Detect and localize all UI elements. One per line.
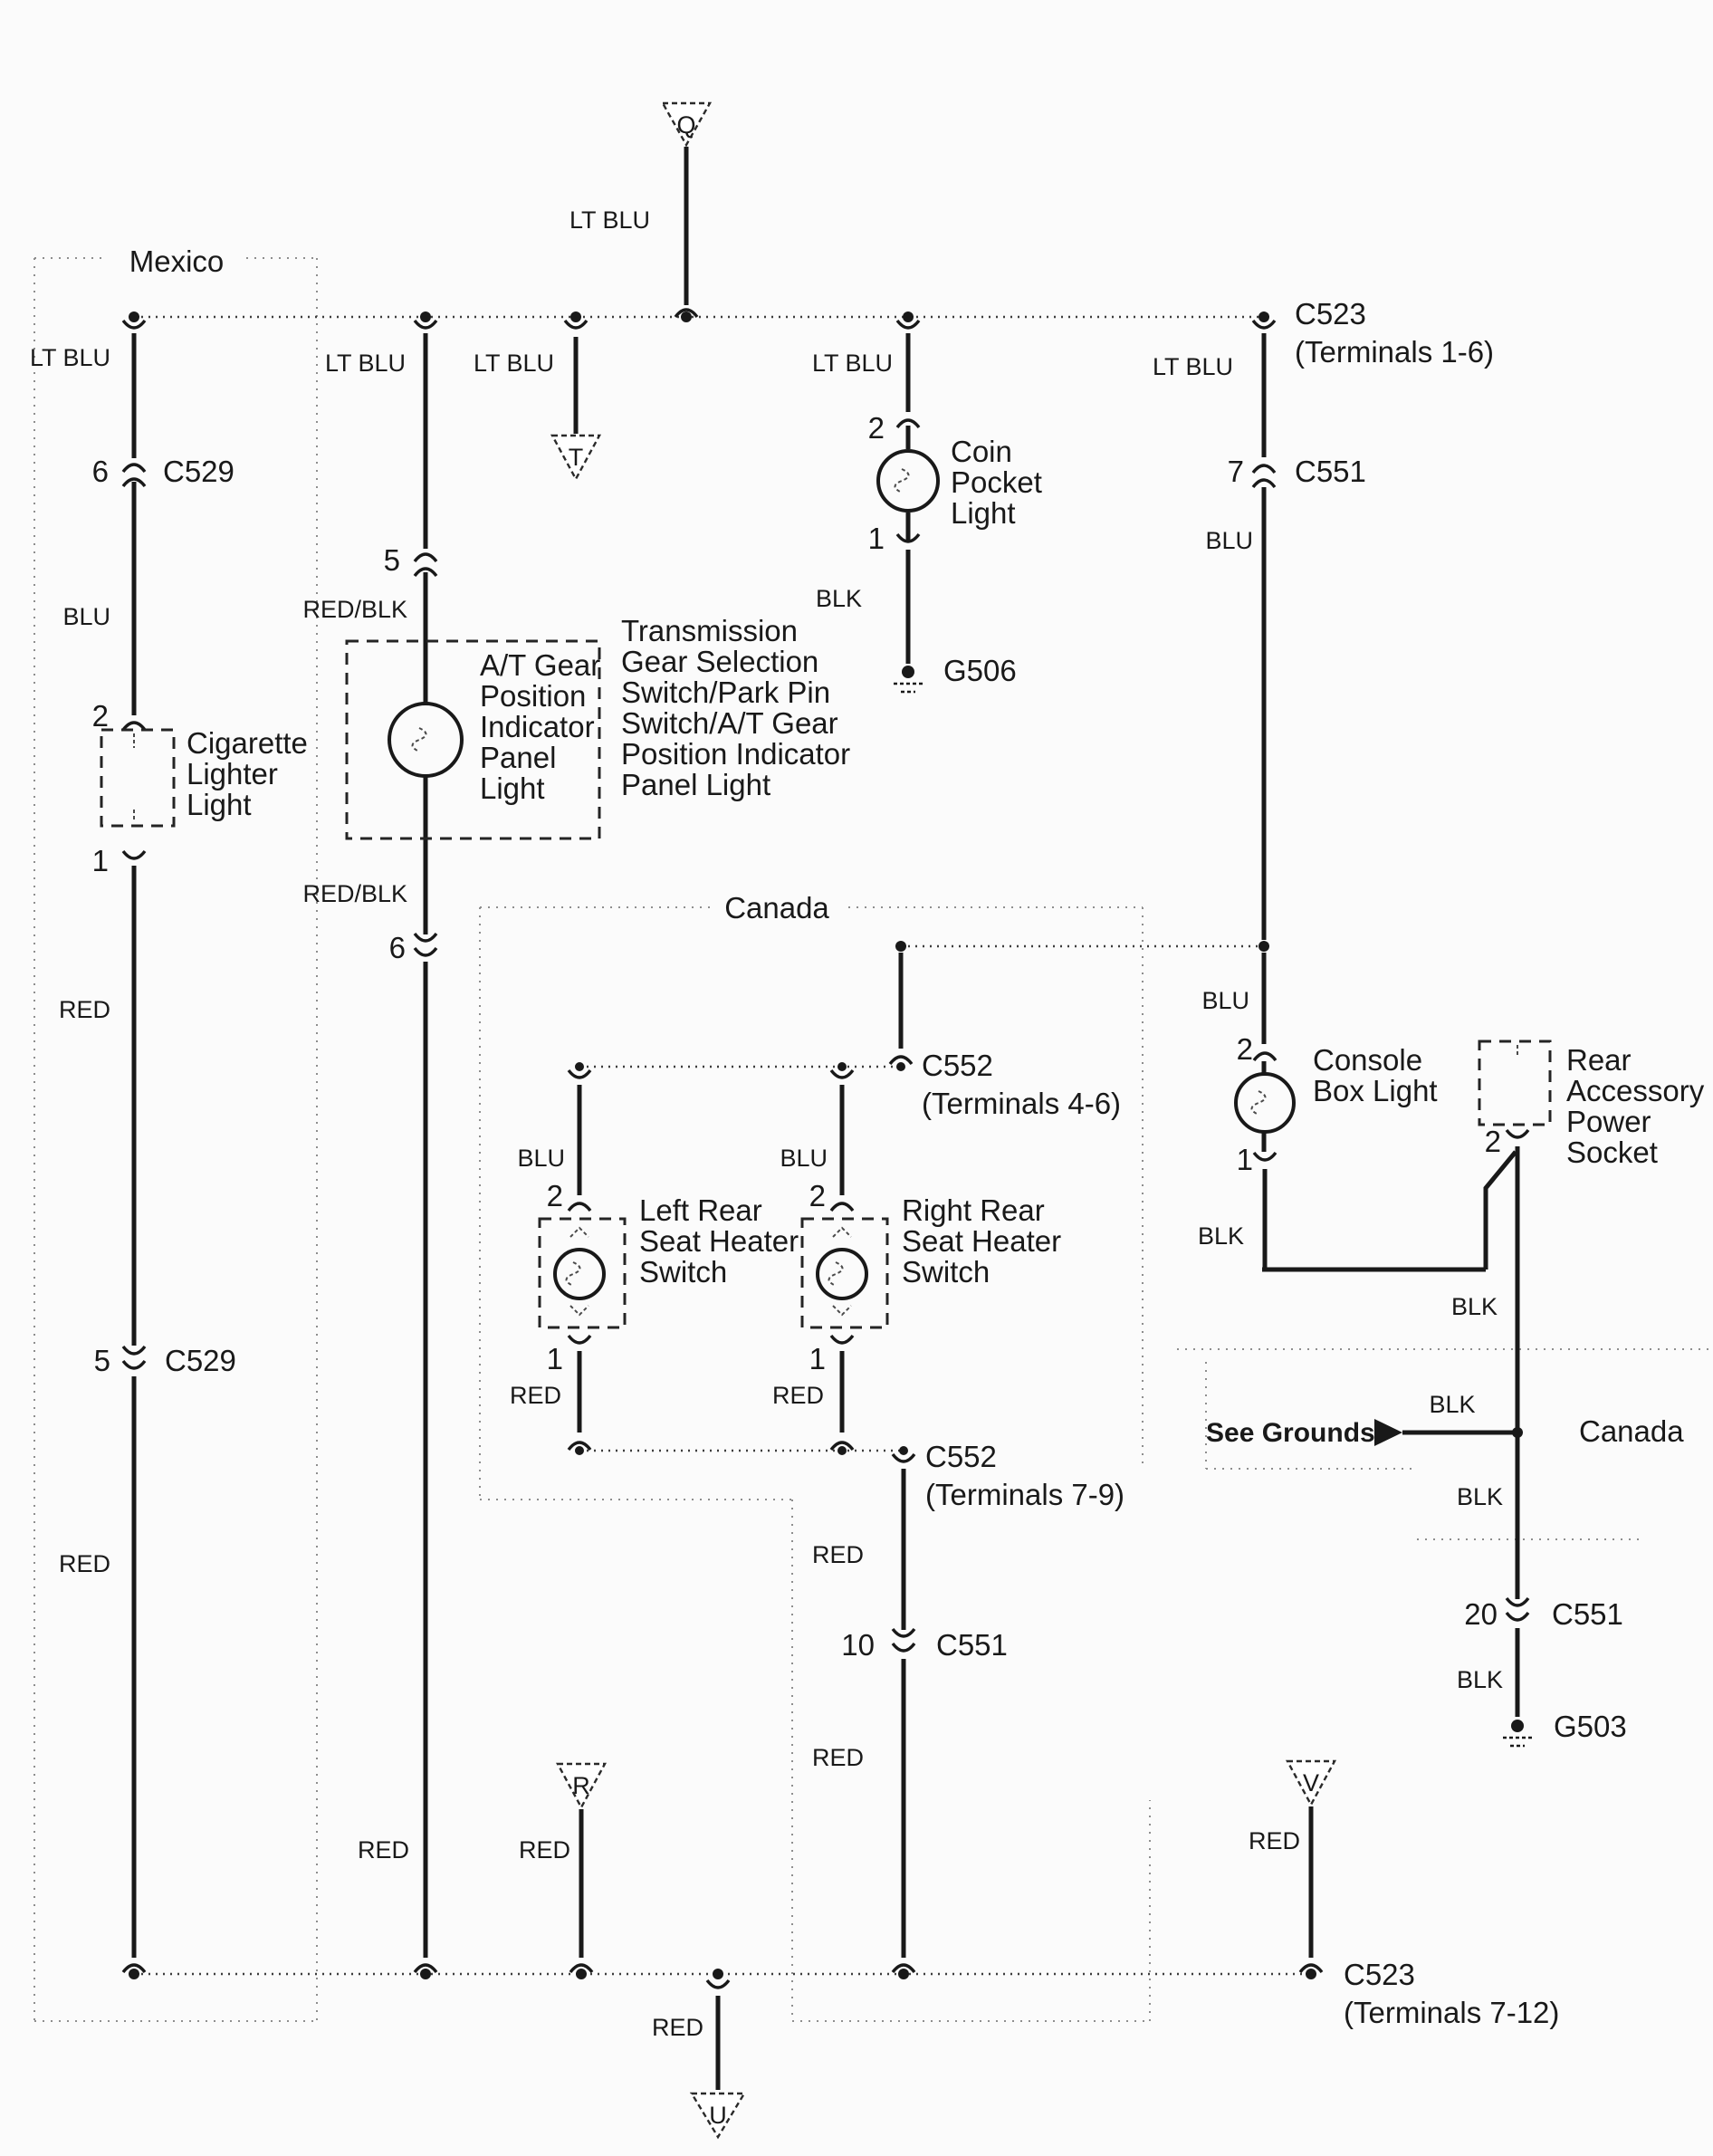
- wire-label: BLK: [816, 585, 862, 612]
- wire-label: BLK: [1429, 1391, 1475, 1418]
- ground-id: G503: [1554, 1710, 1627, 1743]
- pin-number: 1: [809, 1342, 826, 1375]
- bus-line: [134, 317, 1311, 1974]
- wire-label: RED/BLK: [302, 596, 407, 623]
- junction-dot: [837, 1062, 847, 1071]
- transmission-note-line: Gear Selection: [621, 645, 818, 678]
- right-heater-label-line: Seat Heater: [902, 1224, 1061, 1258]
- connector-id: C552: [925, 1440, 997, 1473]
- pin-number: 20: [1464, 1597, 1498, 1631]
- junction-dot: [896, 1062, 905, 1071]
- junction-dot: [837, 1446, 847, 1455]
- at-gear-label-line: Panel: [480, 741, 556, 774]
- transmission-note-line: Switch/A/T Gear: [621, 706, 838, 740]
- pin-number: 2: [868, 411, 885, 445]
- connector-id: C529: [163, 455, 234, 488]
- connector-id: (Terminals 4-6): [922, 1087, 1121, 1120]
- junction-dot: [1258, 311, 1269, 322]
- wire-label: LT BLU: [1153, 353, 1233, 380]
- coin-pocket-label-line: Light: [951, 496, 1016, 530]
- transmission-note-line: Switch/Park Pin: [621, 676, 830, 709]
- at-gear-label-line: Indicator: [480, 710, 595, 743]
- coin-pocket-label-line: Pocket: [951, 465, 1042, 499]
- junction-dot: [1258, 941, 1269, 952]
- g503-ground-icon: [1511, 1720, 1524, 1732]
- junction-dot: [570, 311, 581, 322]
- connector-id: C551: [1552, 1597, 1623, 1631]
- pin-number: 10: [841, 1628, 875, 1662]
- canada-right-region-label: Canada: [1579, 1414, 1684, 1448]
- junction-dot: [129, 1969, 139, 1979]
- triangle-letter-t: T: [569, 444, 584, 471]
- junction-dot: [420, 1969, 431, 1979]
- connector-id: C523: [1295, 297, 1366, 331]
- wire-canada-heaters: [579, 953, 904, 1958]
- triangle-letter-u: U: [709, 2102, 727, 2129]
- rear-accessory-socket-box: [1479, 1041, 1550, 1125]
- left-heater-label-line: Seat Heater: [639, 1224, 799, 1258]
- connector-id: C551: [936, 1628, 1008, 1662]
- wire-label: RED: [812, 1541, 864, 1568]
- transmission-note-line: Transmission: [621, 614, 798, 647]
- cigarette-label-line: Cigarette: [187, 726, 308, 760]
- junction-dot: [576, 1969, 587, 1979]
- junction-dot: [895, 941, 906, 952]
- junction-dot: [1306, 1969, 1316, 1979]
- transmission-note-line: Panel Light: [621, 768, 770, 801]
- wire-label: RED: [59, 996, 110, 1023]
- junction-dot: [575, 1062, 584, 1071]
- junction-dot: [713, 1969, 723, 1979]
- pin-number: 2: [1485, 1125, 1501, 1158]
- triangle-letter-r: R: [572, 1772, 590, 1799]
- pin-number: 2: [547, 1179, 563, 1212]
- cigarette-label-line: Lighter: [187, 757, 278, 791]
- at-gear-label-line: Light: [480, 771, 545, 805]
- junction-dot: [575, 1446, 584, 1455]
- console-box-label-line: Box Light: [1313, 1074, 1438, 1107]
- wire-label: BLK: [1457, 1666, 1503, 1693]
- console-box-lamp-icon: [1236, 1074, 1294, 1132]
- wire-label: LT BLU: [474, 350, 554, 377]
- bus-lines: [134, 317, 1311, 1974]
- right-heater-label-line: Switch: [902, 1255, 990, 1289]
- triangle-letter-v: V: [1303, 1769, 1319, 1797]
- wire-label: BLU: [62, 603, 110, 630]
- junction-dot: [129, 311, 139, 322]
- g506-ground-icon: [902, 666, 914, 678]
- coin-pocket-lamp-icon: [878, 451, 938, 511]
- pin-number: 2: [92, 699, 109, 733]
- connector-id: C529: [165, 1344, 236, 1377]
- pin-number: 6: [92, 455, 109, 488]
- connector-id: (Terminals 7-9): [925, 1478, 1124, 1511]
- wiring-diagram-canvas: Q T R V U Mexico Canada Canada See Groun…: [0, 0, 1713, 2156]
- cigarette-lighter-light-box: [101, 730, 174, 826]
- at-gear-lamp-icon: [389, 704, 462, 776]
- see-grounds-label: See Grounds: [1206, 1418, 1375, 1448]
- wire-label: LT BLU: [569, 206, 650, 234]
- pin-number: 1: [92, 844, 109, 877]
- wire-label: BLK: [1198, 1222, 1244, 1250]
- junction-dot: [420, 311, 431, 322]
- right-heater-label-line: Right Rear: [902, 1193, 1045, 1227]
- connector-ids: C529 C529 C523 (Terminals 1-6) C551 C552…: [163, 297, 1627, 2029]
- pin-number: 1: [1237, 1143, 1253, 1176]
- mexico-region-border: [34, 258, 317, 2021]
- pin-number: 6: [389, 931, 406, 964]
- triangle-letter-q: Q: [676, 111, 695, 139]
- see-grounds-arrow-icon: [1374, 1419, 1402, 1446]
- coin-pocket-label-line: Coin: [951, 435, 1012, 468]
- pin-number: 7: [1228, 455, 1244, 488]
- wire-label: BLU: [517, 1145, 565, 1172]
- at-gear-label-line: A/T Gear: [480, 648, 600, 682]
- wire-label: RED: [59, 1550, 110, 1577]
- junction-dot: [1512, 1427, 1523, 1438]
- console-box-label-line: Console: [1313, 1043, 1422, 1077]
- rear-socket-label-line: Rear: [1566, 1043, 1632, 1077]
- right-heater-lamp-icon: [818, 1250, 866, 1298]
- wire-label: RED: [358, 1836, 409, 1864]
- at-gear-label-line: Position: [480, 679, 586, 713]
- junction-dot: [681, 311, 692, 322]
- cigarette-label-line: Light: [187, 788, 252, 821]
- wire-label: BLK: [1457, 1483, 1503, 1510]
- connector-id: C551: [1295, 455, 1366, 488]
- left-heater-label-line: Left Rear: [639, 1193, 762, 1227]
- offpage-triangles: Q T R V U: [552, 103, 1335, 2137]
- wire-label: LT BLU: [812, 350, 893, 377]
- connector-id: (Terminals 7-12): [1344, 1996, 1559, 2029]
- wire-label: RED: [519, 1836, 570, 1864]
- component-labels: Cigarette Lighter Light A/T Gear Positio…: [187, 435, 1705, 1289]
- wire-label: BLU: [1205, 527, 1253, 554]
- transmission-note-line: Position Indicator: [621, 737, 850, 771]
- ground-id: G506: [943, 654, 1017, 687]
- connector-id: (Terminals 1-6): [1295, 335, 1494, 369]
- wire-label: BLU: [780, 1145, 828, 1172]
- pin-number: 2: [1237, 1032, 1253, 1066]
- wire-label: RED: [772, 1382, 824, 1409]
- wire-end-hill-icons: [123, 310, 1322, 1972]
- wire-label: BLU: [1201, 987, 1249, 1014]
- wire-label: RED: [1249, 1827, 1300, 1854]
- wire-label: RED: [510, 1382, 561, 1409]
- junction-dot: [899, 1446, 908, 1455]
- connector-id: C523: [1344, 1958, 1415, 1991]
- mexico-region-title: Mexico: [129, 244, 225, 278]
- left-heater-lamp-icon: [555, 1250, 604, 1298]
- wire-label: LT BLU: [30, 344, 110, 371]
- wire-label: RED: [812, 1744, 864, 1771]
- rear-socket-label-line: Power: [1566, 1105, 1651, 1138]
- pin-number: 1: [547, 1342, 563, 1375]
- wire-label: BLK: [1451, 1293, 1498, 1320]
- rear-socket-label-line: Socket: [1566, 1135, 1658, 1169]
- pin-number: 1: [868, 522, 885, 555]
- rear-socket-label-line: Accessory: [1566, 1074, 1705, 1107]
- junction-dot: [903, 311, 914, 322]
- pin-number: 2: [809, 1179, 826, 1212]
- pin-number: 5: [384, 543, 400, 577]
- pin-number: 5: [94, 1344, 110, 1377]
- see-grounds-box-border: [1206, 1362, 1414, 1469]
- junction-dot: [898, 1969, 909, 1979]
- wire-label: LT BLU: [325, 350, 406, 377]
- connector-id: C552: [922, 1049, 993, 1082]
- wire-label: RED/BLK: [302, 880, 407, 907]
- wiring-diagram-page: Q T R V U Mexico Canada Canada See Groun…: [0, 0, 1713, 2156]
- wire-bottom-triangles: [581, 1806, 1311, 2090]
- left-heater-label-line: Switch: [639, 1255, 727, 1289]
- canada-mid-region-title: Canada: [724, 891, 829, 925]
- wire-label: RED: [652, 2014, 703, 2041]
